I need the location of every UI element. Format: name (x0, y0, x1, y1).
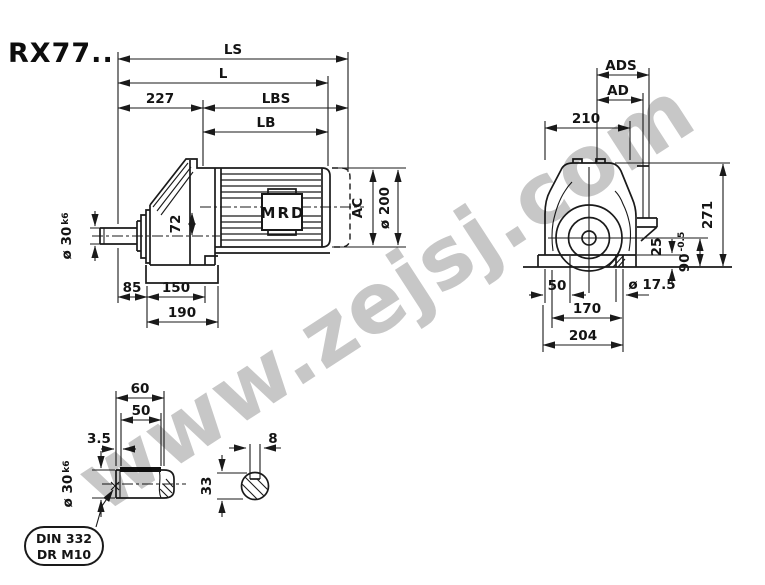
key-section-dimension-lines (222, 448, 281, 517)
brand-label: MRD (261, 204, 306, 222)
foot-slot-hatch (608, 255, 625, 267)
dim-label-227: 227 (146, 91, 174, 107)
dim-label-ac: AC (350, 198, 366, 218)
dim-label-3-5: 3.5 (87, 431, 111, 447)
callout-leader (96, 490, 113, 527)
model-designation: RX77.. (8, 38, 114, 69)
center-bore-mark (111, 482, 119, 490)
key-strip (120, 467, 161, 472)
dim-label-210: 210 (572, 111, 600, 127)
dim-label-25: 25 (649, 238, 665, 257)
dim-label-50-front: 50 (548, 278, 567, 294)
front-view-dimension-labels: ADS AD 210 271 90-0.5 25 ø 17.5 50 170 2… (548, 58, 716, 344)
dim-label-lb: LB (257, 115, 276, 131)
dim-label-shaft-dia-detail: ø 30k6 (60, 460, 76, 507)
dim-label-ads: ADS (605, 58, 636, 74)
break-line (159, 470, 161, 498)
dim-label-50: 50 (132, 403, 151, 419)
dim-label-190: 190 (168, 305, 196, 321)
technical-drawing: LS L 227 LBS LB 85 150 190 72 AC ø 200 ø… (0, 0, 765, 585)
dim-label-170: 170 (573, 301, 601, 317)
dim-label-ls: LS (224, 42, 242, 58)
callout-line2: DR M10 (37, 547, 91, 562)
callout-line1: DIN 332 (36, 531, 92, 546)
dim-label-271: 271 (700, 201, 716, 229)
drawing-sheet: LS L 227 LBS LB 85 150 190 72 AC ø 200 ø… (0, 0, 765, 585)
key-section-detail: 8 33 (199, 431, 281, 517)
dim-label-33: 33 (199, 477, 215, 496)
mounting-foot (523, 255, 732, 267)
dim-label-o200: ø 200 (377, 187, 393, 229)
gearmotor-side-outline: MRD (92, 159, 364, 283)
dim-label-204: 204 (569, 328, 597, 344)
dim-label-60: 60 (131, 381, 150, 397)
front-view: ADS AD 210 271 90-0.5 25 ø 17.5 50 170 2… (523, 58, 732, 352)
key-section-extension-lines (217, 473, 247, 499)
dim-label-85: 85 (123, 280, 142, 296)
motor-nameplate: MRD (261, 189, 306, 235)
dim-label-l: L (219, 66, 228, 82)
shaft-detail-outline (102, 467, 186, 498)
shaft-detail-dimension-labels: 60 50 3.5 ø 30k6 (60, 381, 150, 508)
dim-label-ad: AD (607, 83, 629, 99)
dim-label-o17-5: ø 17.5 (628, 277, 675, 293)
dim-label-8: 8 (268, 431, 277, 447)
motor-behind-housing (637, 166, 657, 241)
break-hatch (160, 479, 173, 497)
dim-label-72: 72 (168, 215, 184, 234)
dim-label-lbs: LBS (262, 91, 291, 107)
side-view: LS L 227 LBS LB 85 150 190 72 AC ø 200 ø… (59, 42, 406, 328)
shaft-detail: 60 50 3.5 ø 30k6 DIN 332 (25, 381, 186, 565)
dim-label-shaft-dia: ø 30k6 (59, 212, 75, 259)
side-view-dimension-labels: LS L 227 LBS LB 85 150 190 72 AC ø 200 ø… (59, 42, 393, 321)
